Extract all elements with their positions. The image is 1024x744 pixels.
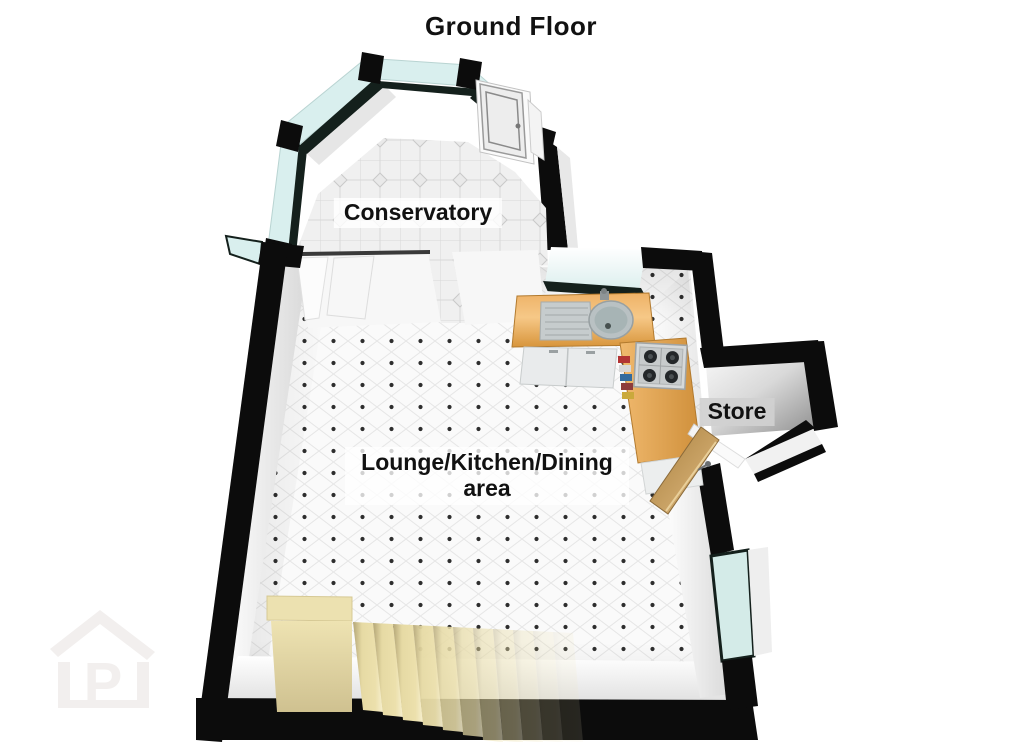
floorplan-graphic: P bbox=[0, 0, 1024, 744]
watermark-letter: P bbox=[84, 651, 123, 716]
floorplan-canvas: P bbox=[0, 0, 1024, 744]
room-label-conservatory: Conservatory bbox=[334, 198, 502, 228]
conservatory-door bbox=[476, 80, 544, 164]
room-label-line1: Lounge/Kitchen/Dining bbox=[361, 449, 613, 475]
room-label-line2: area bbox=[463, 475, 510, 501]
patio-sliding-doors bbox=[297, 256, 374, 320]
room-label-store: Store bbox=[700, 398, 775, 426]
gas-hob bbox=[634, 343, 687, 390]
house-p-logo-watermark: P bbox=[50, 610, 155, 716]
page-title: Ground Floor bbox=[425, 12, 597, 41]
conservatory-structure bbox=[262, 52, 578, 272]
room-label-lounge-kitchen-dining: Lounge/Kitchen/Dining area bbox=[345, 447, 629, 505]
